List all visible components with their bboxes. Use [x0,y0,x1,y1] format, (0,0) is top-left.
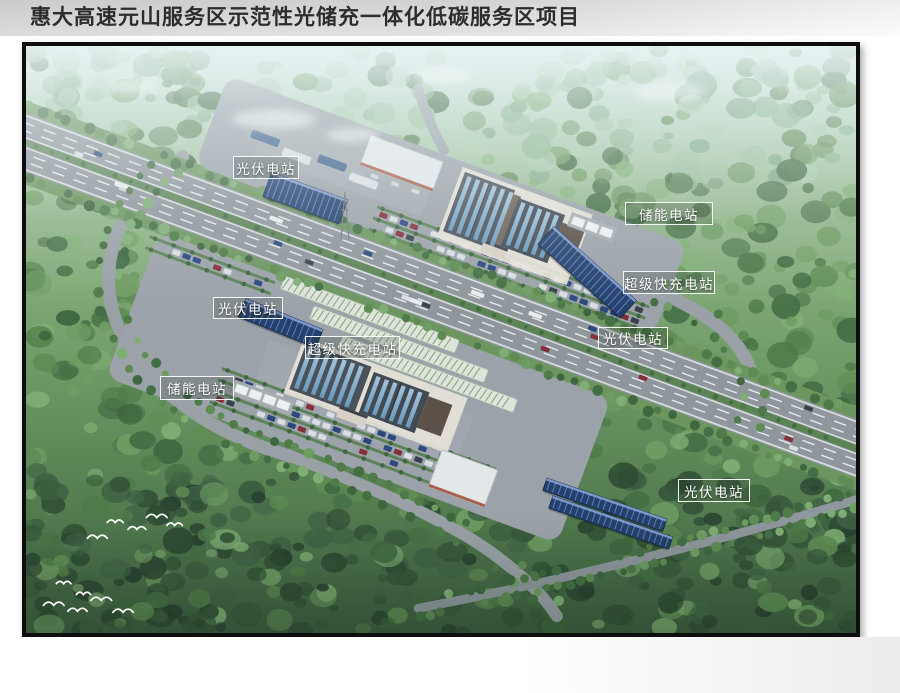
label-pv-station-west: 光伏电站 [213,297,283,319]
page-title: 惠大高速元山服务区示范性光储充一体化低碳服务区项目 [0,0,900,36]
label-storage-station-west: 储能电站 [160,376,234,400]
label-pv-station-southeast: 光伏电站 [678,479,750,502]
label-fast-charging-center: 超级快充电站 [305,336,400,359]
render-labels-layer: 光伏电站储能电站超级快充电站光伏电站光伏电站超级快充电站储能电站光伏电站 [26,46,856,633]
title-bar: 惠大高速元山服务区示范性光储充一体化低碳服务区项目 [0,0,900,36]
aerial-render-frame: 光伏电站储能电站超级快充电站光伏电站光伏电站超级快充电站储能电站光伏电站 [22,42,860,637]
label-pv-station-northwest: 光伏电站 [233,156,299,179]
label-fast-charging-east: 超级快充电站 [623,271,715,294]
slide-page: 惠大高速元山服务区示范性光储充一体化低碳服务区项目 [0,0,900,693]
label-pv-station-east: 光伏电站 [598,327,668,349]
label-storage-station-east: 储能电站 [625,202,713,225]
footer: 惠州市交通投资集团有限公司 广东省交通规划设计研究院集团股份有限公司 Guang… [0,637,900,693]
